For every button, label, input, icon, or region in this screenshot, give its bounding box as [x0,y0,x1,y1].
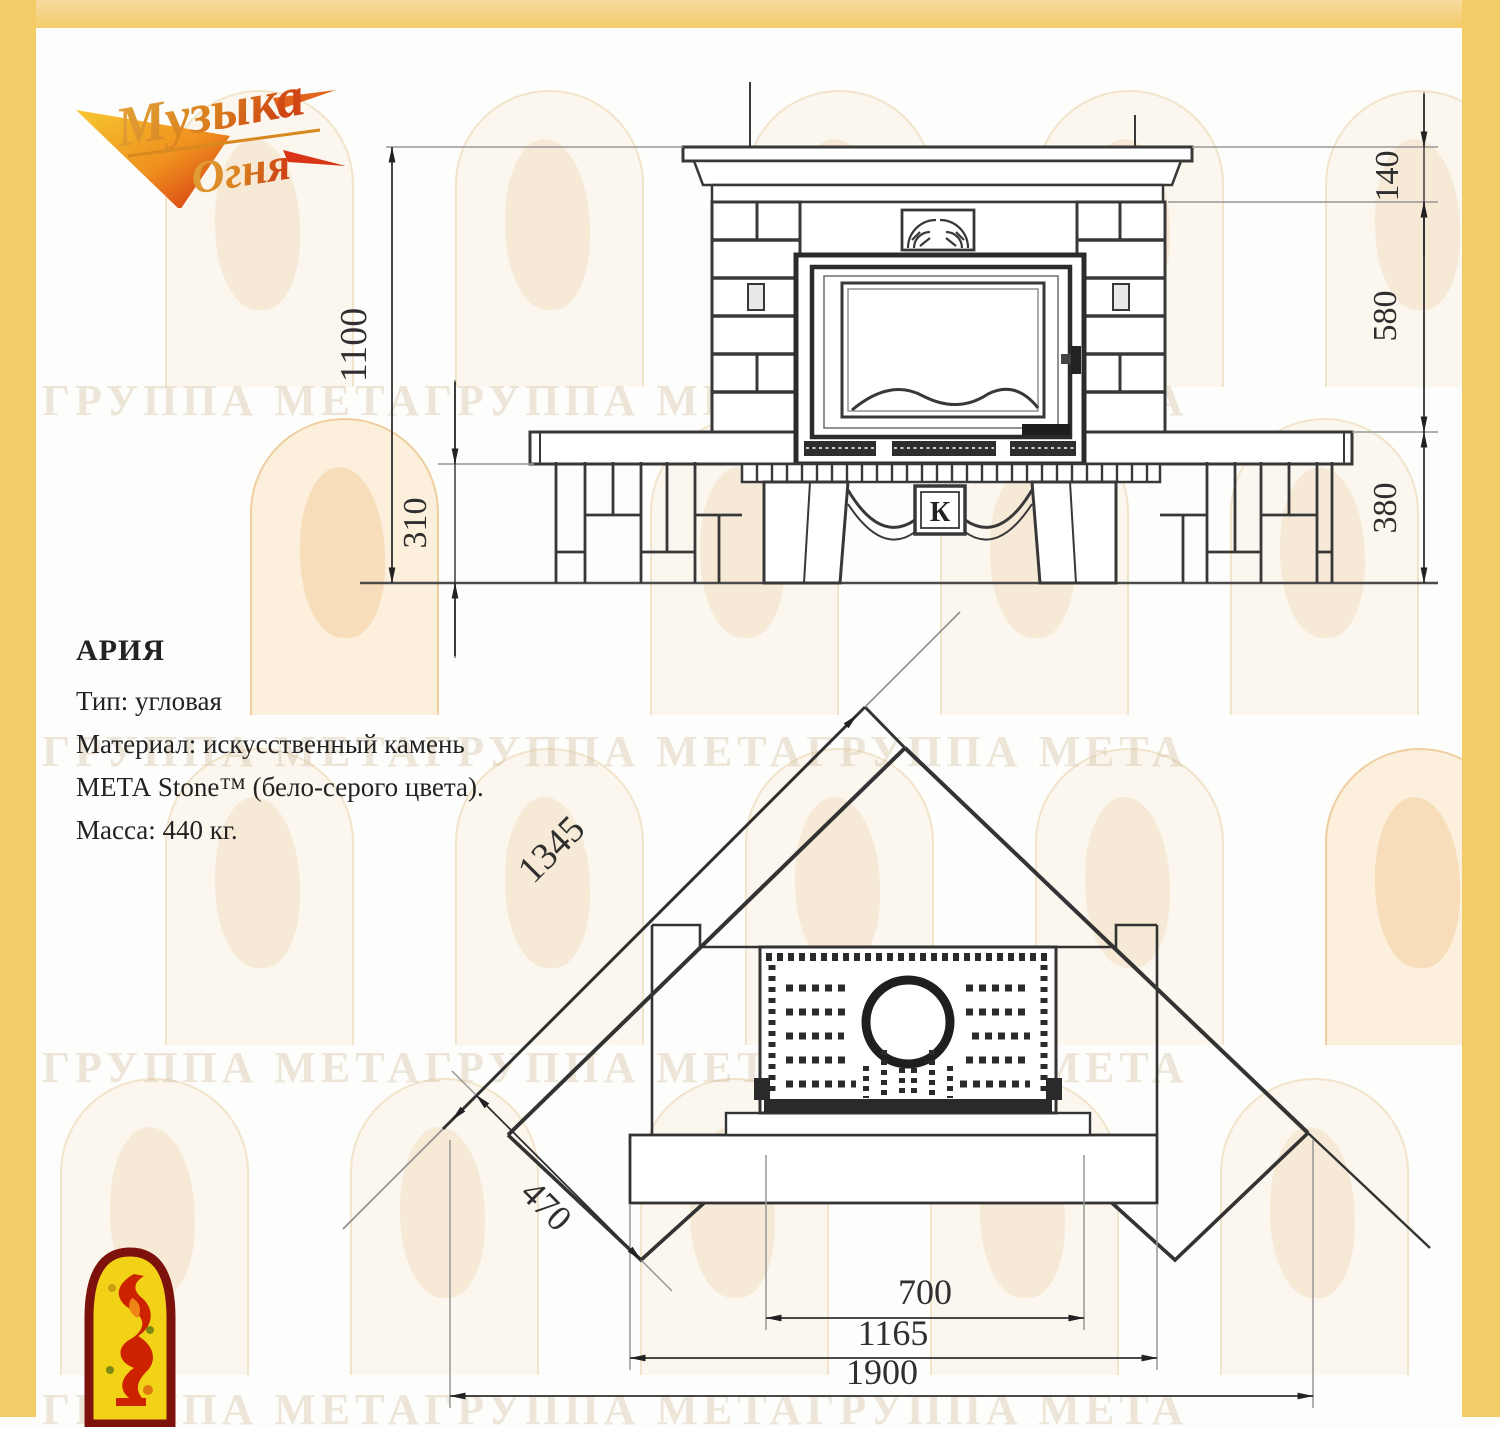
dim-total-height: 1100 [333,308,375,383]
dim-total-width: 1900 [846,1352,918,1392]
dim-base-width: 1165 [858,1313,929,1353]
spec-sheet-page: ГРУППА МЕТАГРУППА МЕТАГРУППА МЕТА ГРУППА… [0,0,1500,1427]
frame-bar-left [0,0,36,1417]
dim-opening-width: 700 [898,1272,952,1312]
product-material-2: МЕТА Stone™ (бело-серого цвета). [76,766,484,809]
dim-middle-height: 580 [1367,291,1404,342]
product-info: АРИЯ Тип: угловая Материал: искусственны… [76,634,484,852]
dim-wall-side: 1345 [510,808,593,891]
product-material-1: Материал: искусственный камень [76,723,484,766]
product-mass: Масса: 440 кг. [76,809,484,852]
base-emblem-letter: К [930,497,951,528]
dim-crown-height: 140 [1369,151,1406,202]
product-type: Тип: угловая [76,680,484,723]
frame-bar-top [0,0,1500,28]
dim-bench-height: 310 [397,498,434,549]
corner-plan [343,612,1430,1260]
brand-logo: Музыка Огня [58,38,358,208]
dim-base-height: 380 [1367,483,1404,534]
meta-arch-logo [82,1240,178,1427]
product-title: АРИЯ [76,634,484,668]
dim-corner-depth: 470 [513,1172,579,1238]
front-elevation [360,82,1438,583]
frame-bar-right [1462,0,1500,1417]
